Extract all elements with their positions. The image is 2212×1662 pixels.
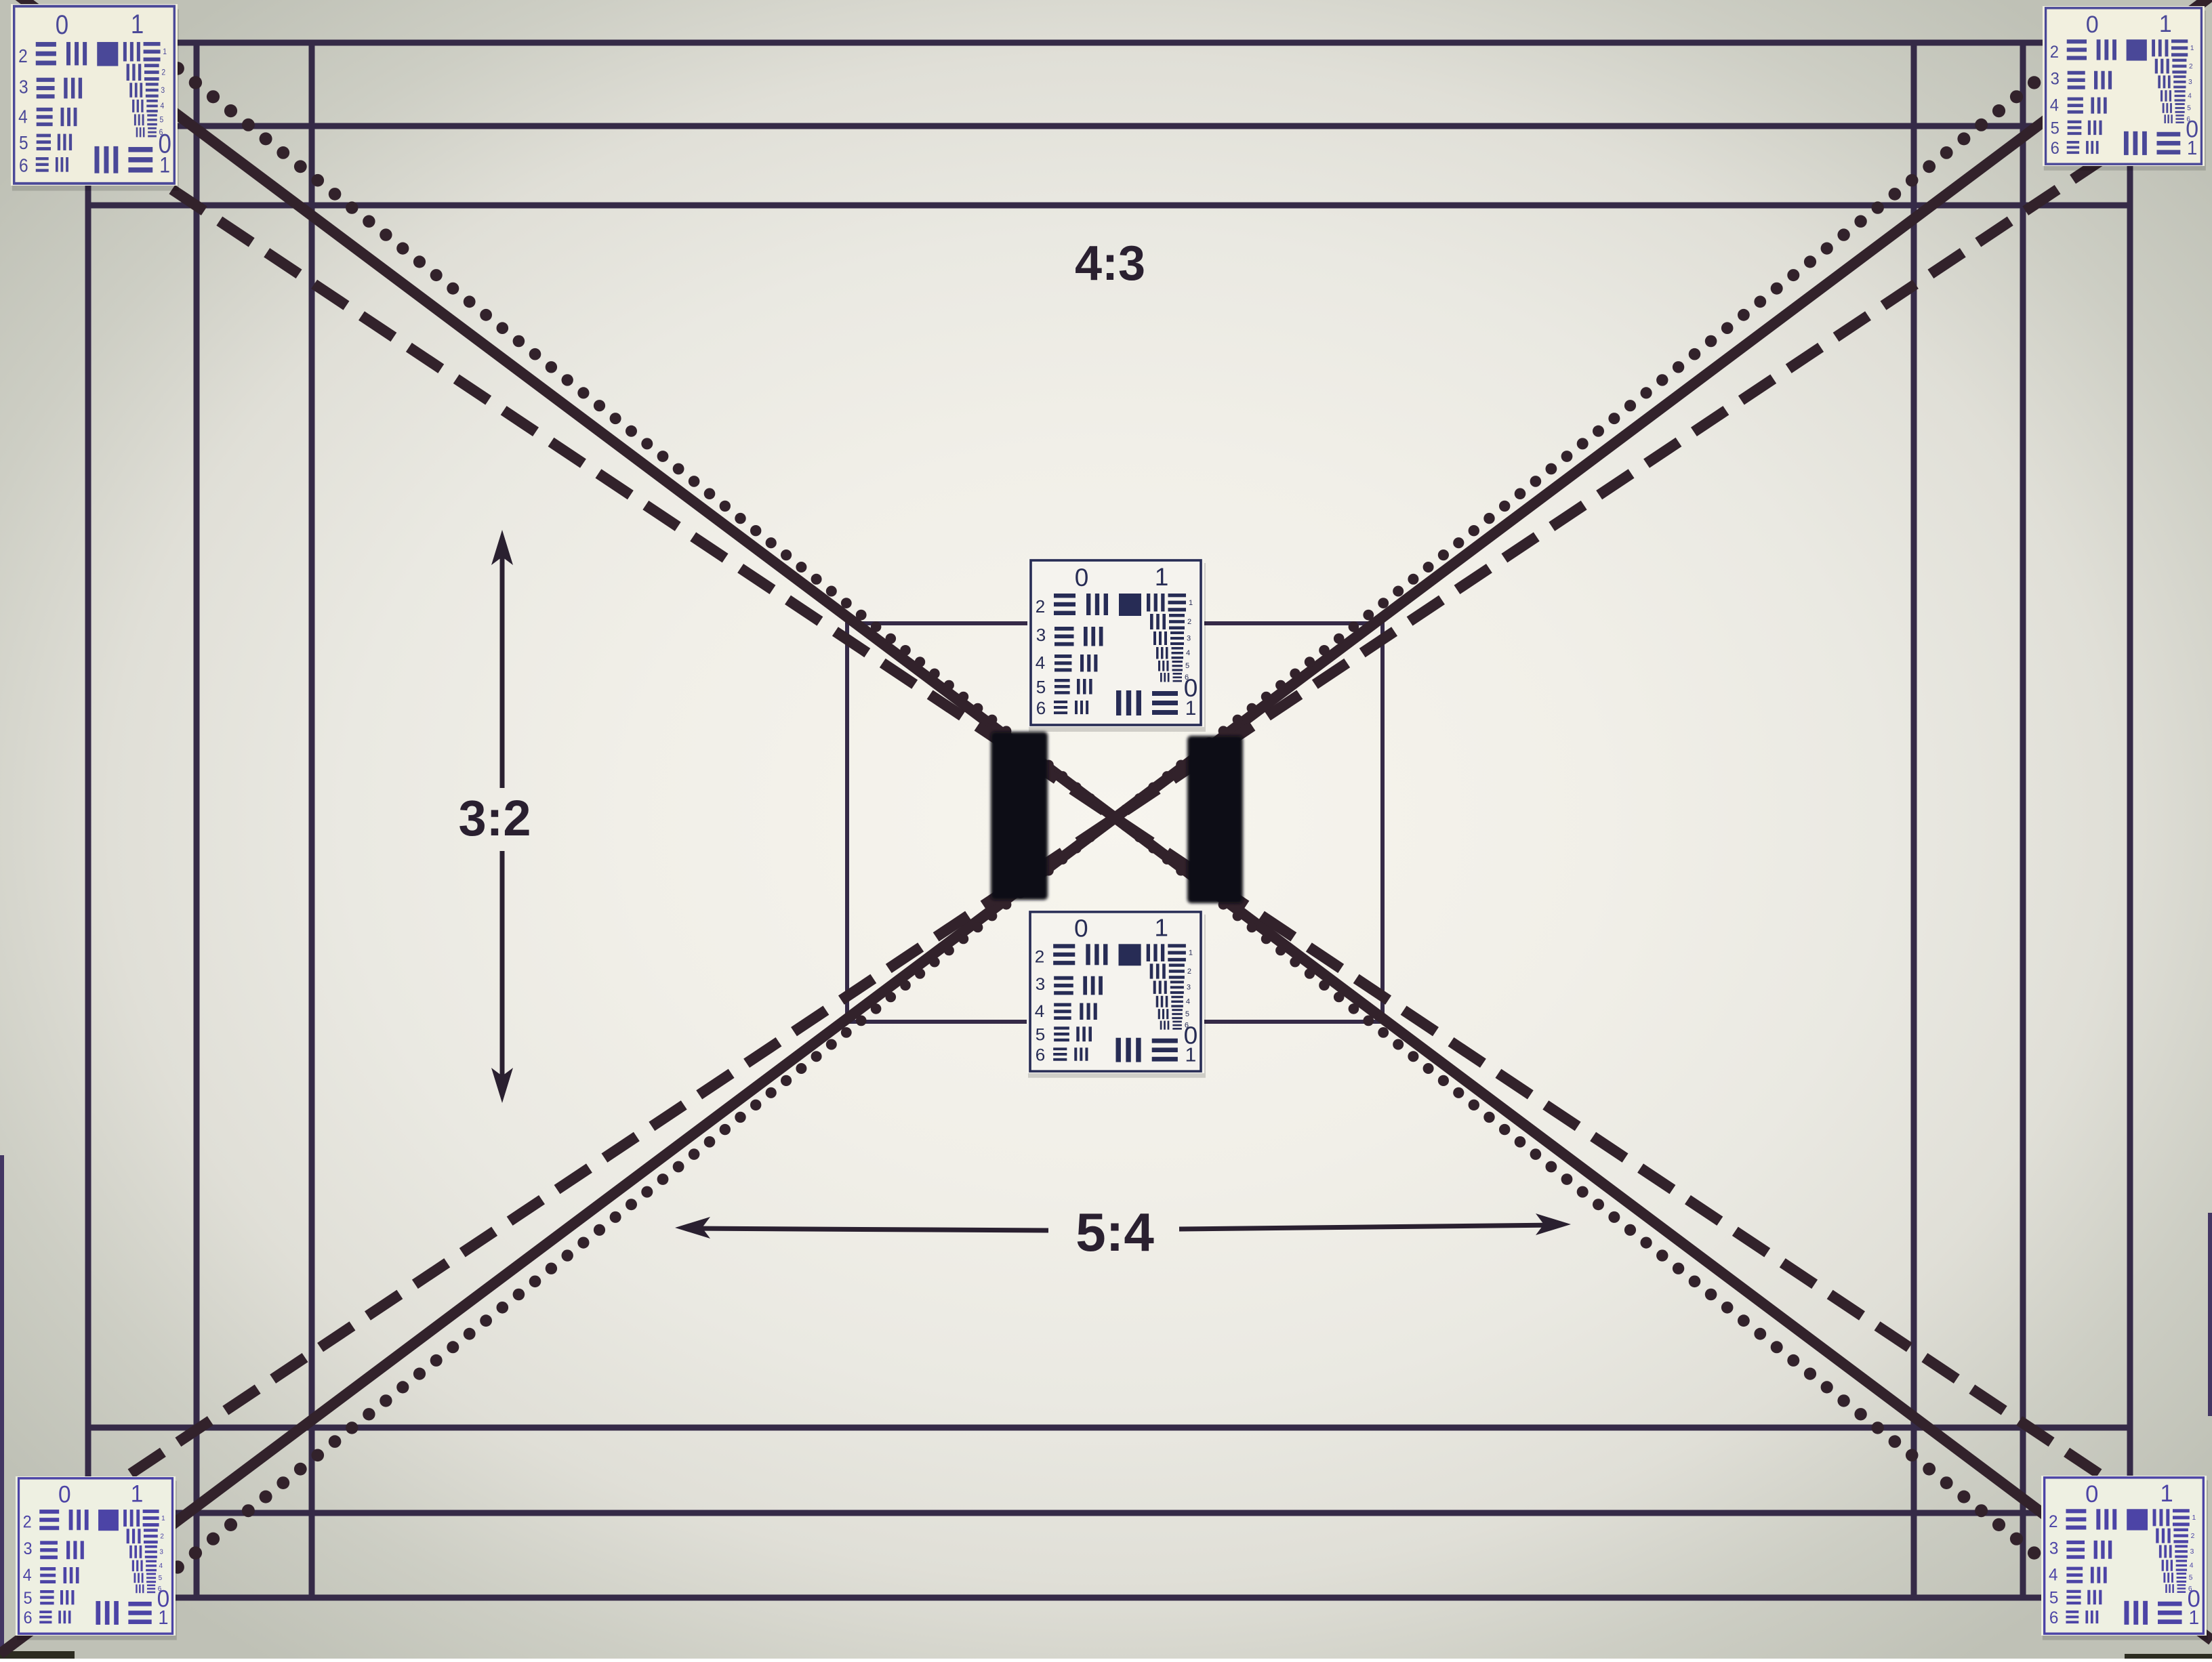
- svg-text:3:2: 3:2: [459, 790, 531, 846]
- svg-text:4:3: 4:3: [1075, 236, 1145, 291]
- svg-text:5:4: 5:4: [1076, 1202, 1154, 1262]
